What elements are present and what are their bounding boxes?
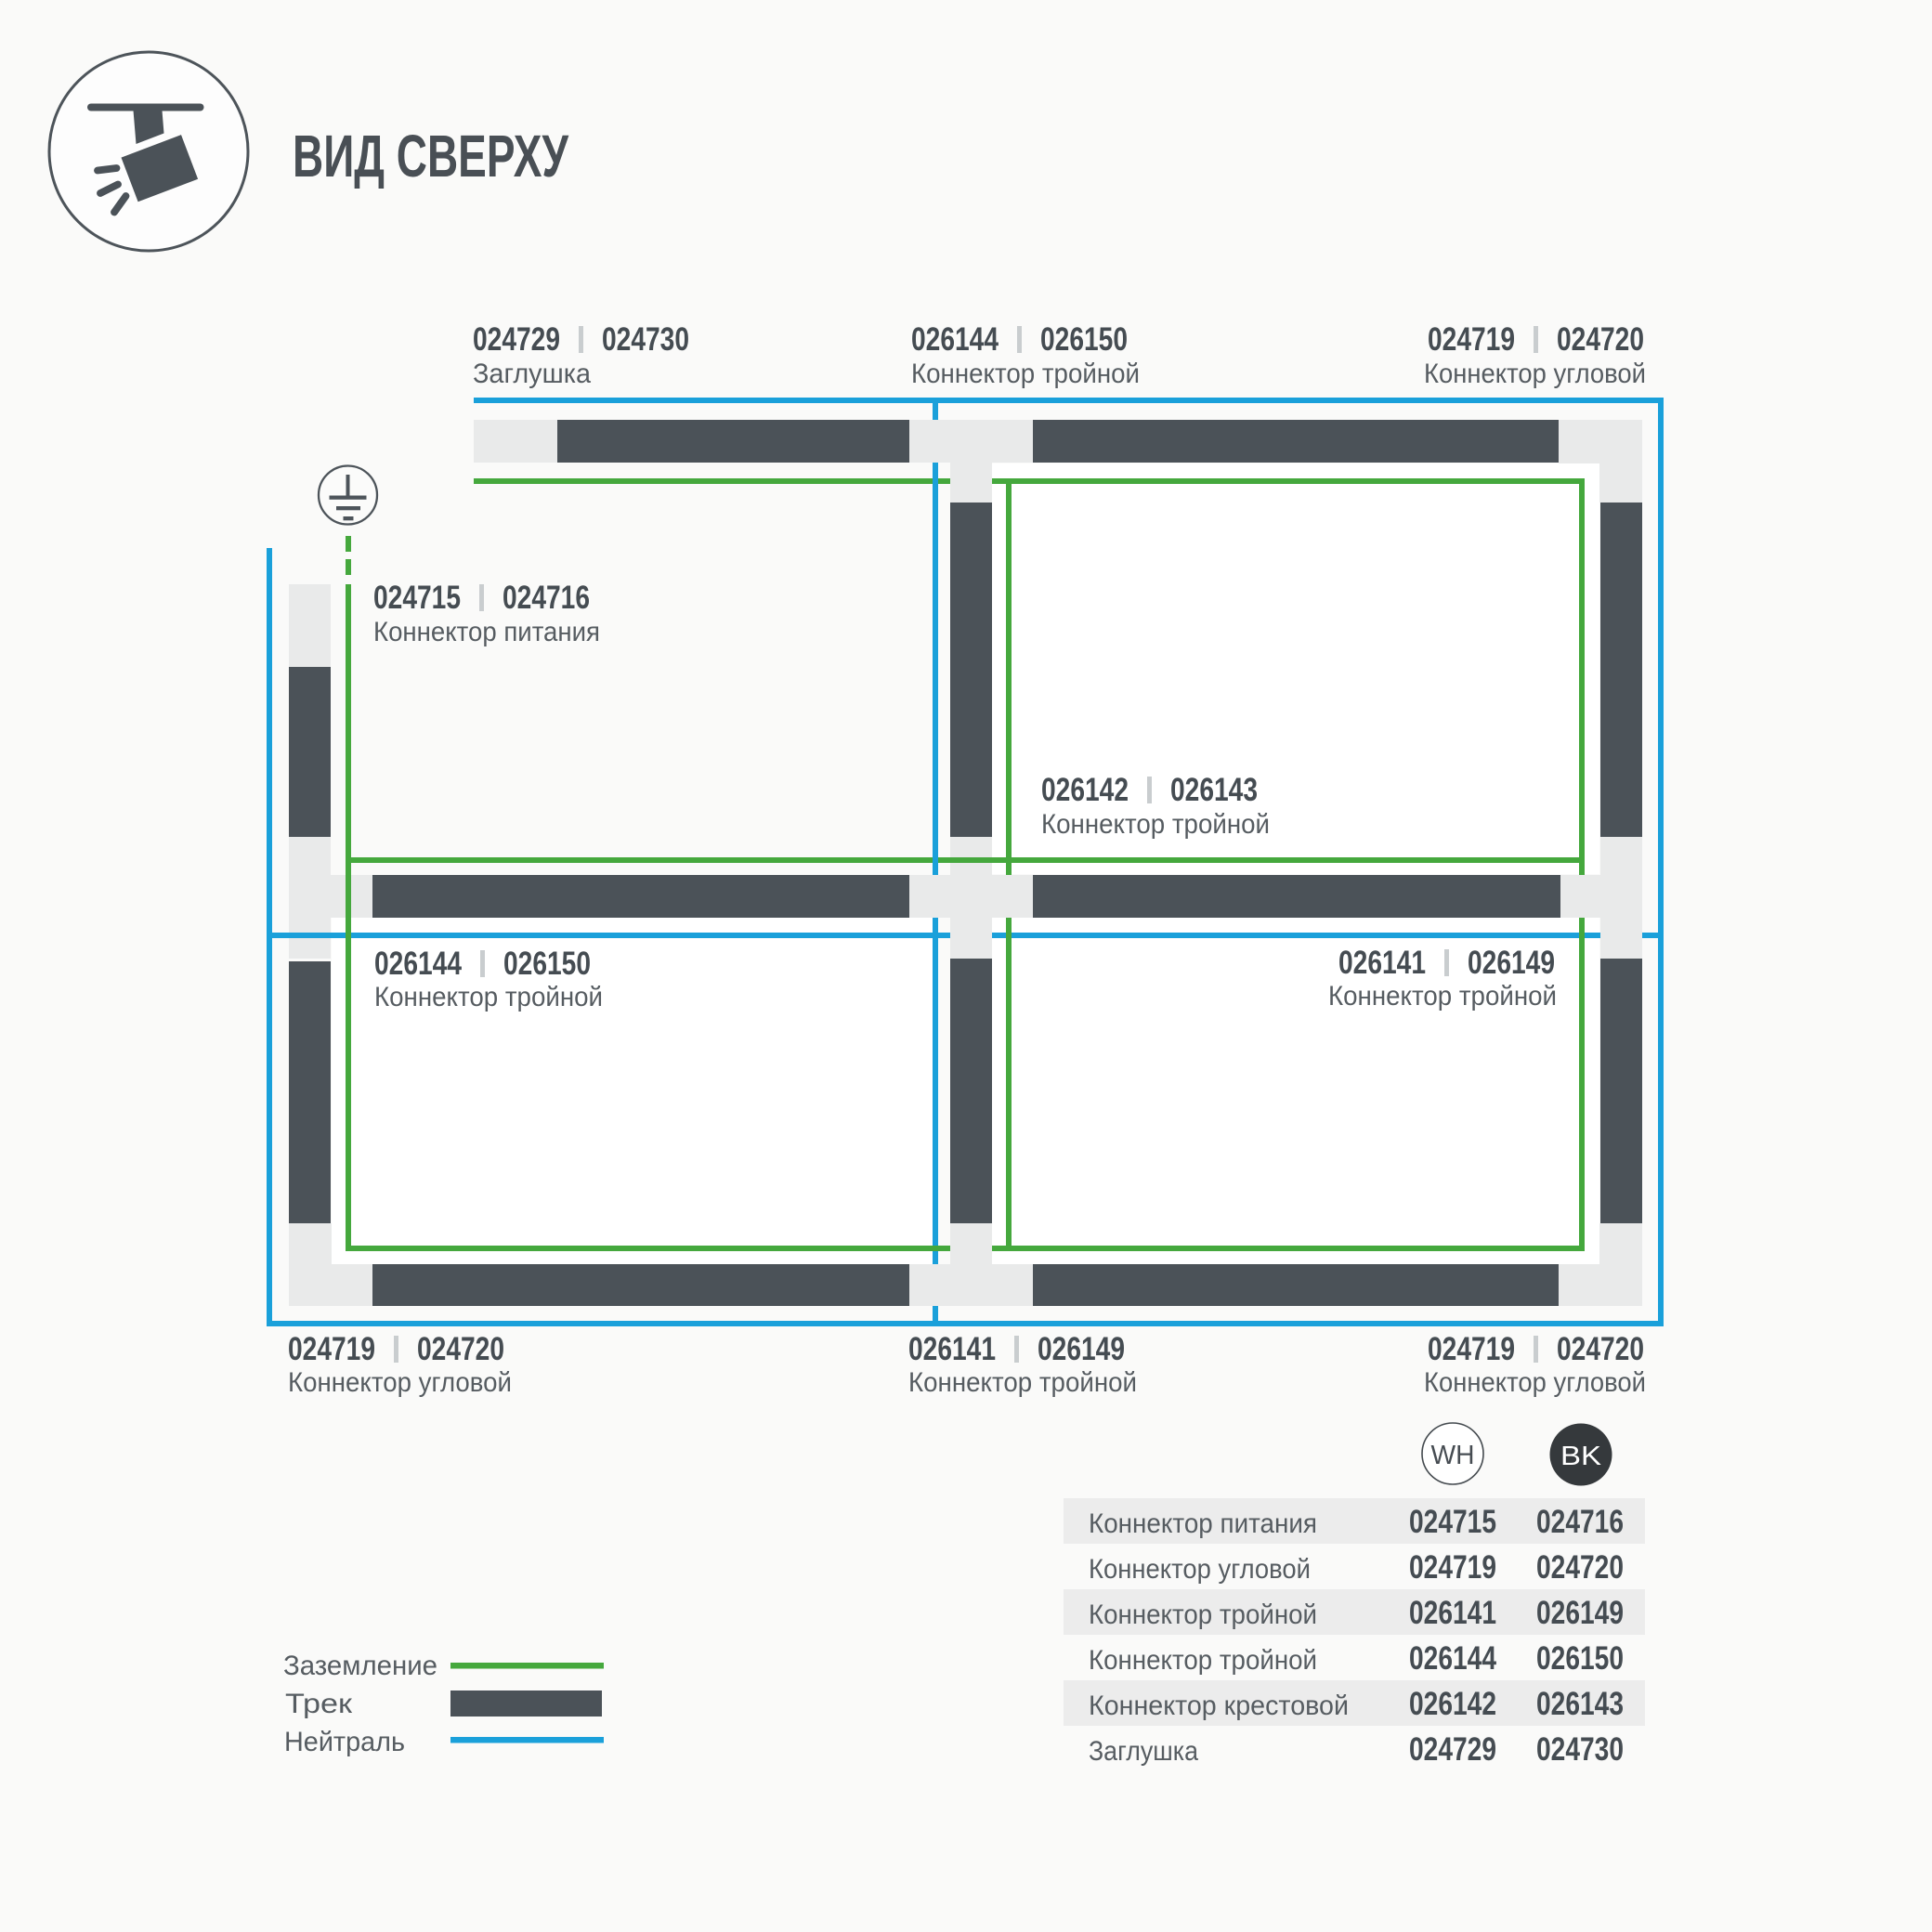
svg-text:026149: 026149 bbox=[1468, 945, 1555, 981]
svg-text:026141: 026141 bbox=[908, 1331, 996, 1367]
svg-text:026142: 026142 bbox=[1409, 1686, 1496, 1722]
svg-text:Коннектор тройной: Коннектор тройной bbox=[374, 982, 603, 1012]
svg-text:024730: 024730 bbox=[1536, 1731, 1624, 1768]
svg-text:026141: 026141 bbox=[1409, 1595, 1496, 1631]
svg-text:Коннектор питания: Коннектор питания bbox=[373, 617, 600, 647]
svg-text:024716: 024716 bbox=[1536, 1504, 1624, 1540]
svg-text:024715: 024715 bbox=[1409, 1504, 1496, 1540]
svg-text:Заглушка: Заглушка bbox=[1089, 1736, 1198, 1767]
svg-text:024715: 024715 bbox=[373, 580, 461, 616]
svg-text:024719: 024719 bbox=[288, 1331, 375, 1367]
svg-text:026141: 026141 bbox=[1338, 945, 1426, 981]
svg-text:Коннектор тройной: Коннектор тройной bbox=[1328, 981, 1557, 1012]
svg-text:024729: 024729 bbox=[1409, 1731, 1496, 1768]
svg-text:026143: 026143 bbox=[1536, 1686, 1624, 1722]
svg-text:026149: 026149 bbox=[1536, 1595, 1624, 1631]
svg-text:Коннектор тройной: Коннектор тройной bbox=[1089, 1599, 1317, 1630]
svg-text:024729: 024729 bbox=[473, 321, 560, 358]
svg-text:024720: 024720 bbox=[1557, 1331, 1644, 1367]
svg-text:026142: 026142 bbox=[1041, 772, 1129, 808]
svg-text:024719: 024719 bbox=[1428, 1331, 1515, 1367]
svg-text:024720: 024720 bbox=[417, 1331, 504, 1367]
svg-text:BK: BK bbox=[1560, 1442, 1602, 1471]
svg-text:024720: 024720 bbox=[1557, 321, 1644, 358]
svg-text:024730: 024730 bbox=[602, 321, 689, 358]
svg-text:026150: 026150 bbox=[1040, 321, 1128, 358]
svg-text:Коннектор угловой: Коннектор угловой bbox=[1424, 359, 1646, 389]
svg-text:026144: 026144 bbox=[911, 321, 999, 358]
svg-text:Коннектор тройной: Коннектор тройной bbox=[908, 1367, 1137, 1398]
svg-text:024716: 024716 bbox=[503, 580, 590, 616]
svg-text:026149: 026149 bbox=[1038, 1331, 1125, 1367]
svg-text:Трек: Трек bbox=[285, 1689, 353, 1719]
svg-text:Коннектор тройной: Коннектор тройной bbox=[1041, 809, 1270, 840]
svg-text:Коннектор тройной: Коннектор тройной bbox=[1089, 1645, 1317, 1676]
svg-text:Коннектор тройной: Коннектор тройной bbox=[911, 359, 1140, 389]
svg-text:Нейтраль: Нейтраль bbox=[284, 1727, 405, 1757]
svg-text:Коннектор угловой: Коннектор угловой bbox=[1424, 1367, 1646, 1398]
svg-text:026150: 026150 bbox=[503, 946, 591, 982]
svg-text:WH: WH bbox=[1431, 1441, 1475, 1470]
svg-text:026144: 026144 bbox=[1409, 1640, 1496, 1677]
svg-text:024720: 024720 bbox=[1536, 1549, 1624, 1586]
svg-text:Коннектор питания: Коннектор питания bbox=[1089, 1508, 1317, 1539]
svg-text:026143: 026143 bbox=[1170, 772, 1258, 808]
svg-text:Заглушка: Заглушка bbox=[473, 359, 591, 389]
svg-text:024719: 024719 bbox=[1409, 1549, 1496, 1586]
svg-text:026144: 026144 bbox=[374, 946, 462, 982]
svg-text:Коннектор крестовой: Коннектор крестовой bbox=[1089, 1690, 1349, 1721]
svg-text:Коннектор угловой: Коннектор угловой bbox=[1089, 1554, 1311, 1585]
svg-text:ВИД СВЕРХУ: ВИД СВЕРХУ bbox=[293, 123, 569, 189]
svg-text:Коннектор угловой: Коннектор угловой bbox=[288, 1367, 512, 1398]
svg-text:Заземление: Заземление bbox=[283, 1651, 437, 1681]
svg-text:024719: 024719 bbox=[1428, 321, 1515, 358]
svg-text:026150: 026150 bbox=[1536, 1640, 1624, 1677]
